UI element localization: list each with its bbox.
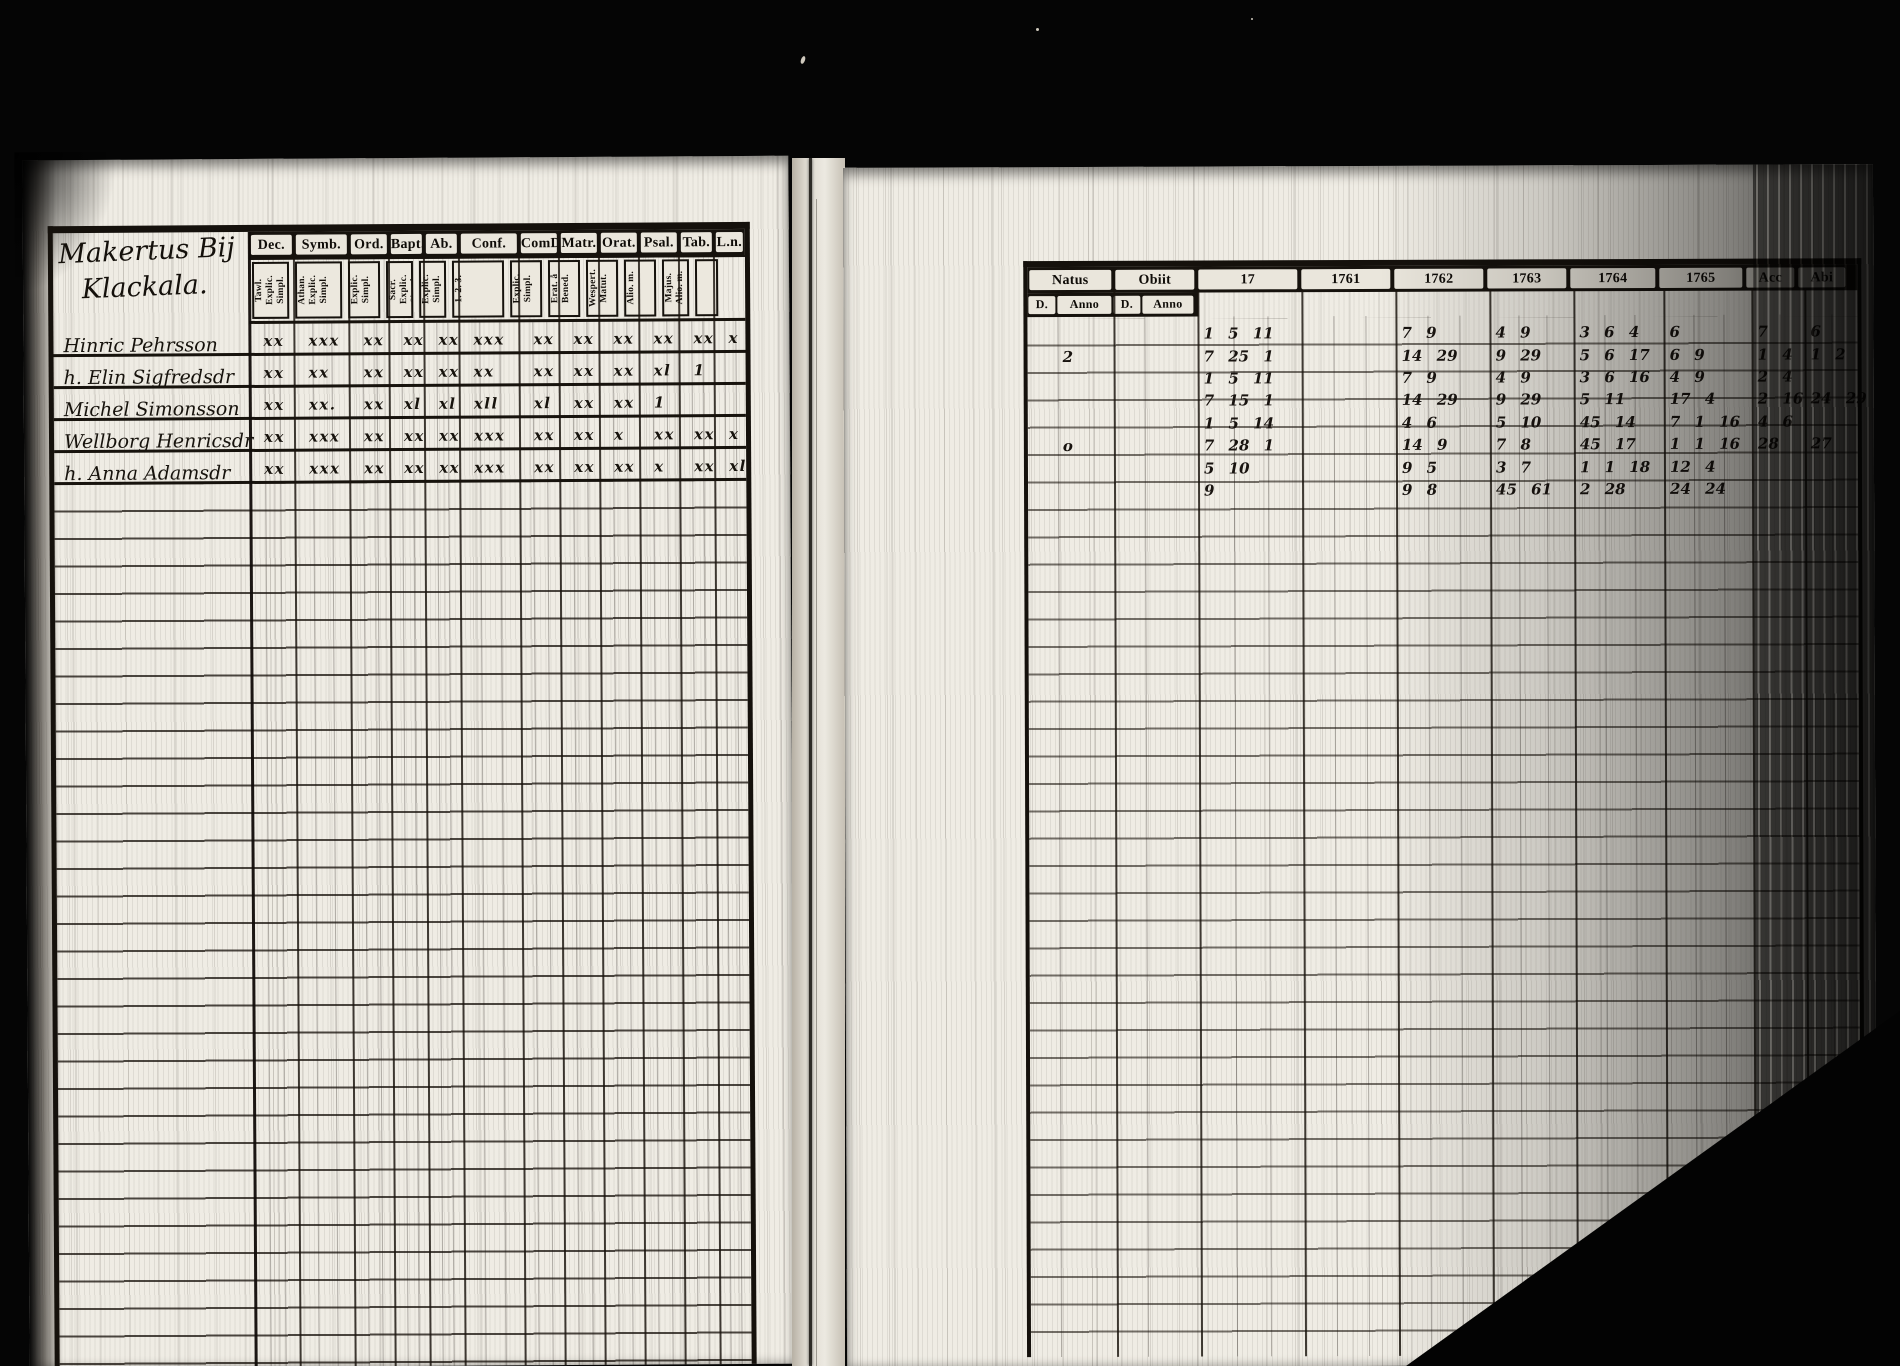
gridline-sub [1518,315,1523,1355]
gridline-sub [331,323,338,1366]
film-speck [1036,28,1039,31]
left-ledger-table: Dec.Symb.Ord.Bapt.Ab.Conf.ComDMatr.Orat.… [48,222,757,1366]
gridline-sub [376,323,383,1366]
gridline-column [598,256,607,1365]
gridline-column [348,257,357,1366]
gridline-sub [532,322,539,1365]
page-edge-streaks [1753,164,1877,1364]
gridline-sub [1723,315,1728,1355]
gridline-sub [279,324,286,1366]
gridline-column [458,257,467,1366]
gridline-sub [735,321,742,1364]
gridline-sub [499,322,506,1365]
gridline-sub [666,321,673,1364]
gridline-sub [724,321,731,1364]
gridline-sub [436,323,443,1366]
gridline-column [1395,290,1401,1356]
gridline-column [293,258,302,1366]
gridline-column [1573,289,1579,1355]
gridline-sub [1459,316,1464,1356]
gridline-column [1197,291,1203,1357]
gridline-sub [612,322,619,1365]
gridline-sub [479,323,486,1366]
gridline-column [713,255,722,1364]
gridline-sub [1365,316,1370,1356]
gridline-sub [1546,315,1551,1355]
gridline-sub [362,323,369,1366]
gridline-sub [1267,316,1272,1356]
gridline-sub [652,321,659,1364]
gridline-sub [1427,316,1432,1356]
gridline-sub [312,324,319,1366]
gridline-column [423,257,432,1366]
gridline-sub [546,322,553,1365]
gridline-column [518,256,527,1365]
gridline-sub [1333,316,1338,1356]
left-page: Dec.Symb.Ord.Bapt.Ab.Conf.ComDMatr.Orat.… [22,156,795,1366]
gridline-sub [1634,315,1639,1355]
heading-line-1: Makertus Bij [58,232,236,270]
gridline-sub [572,322,579,1365]
gridline-sub [691,321,698,1364]
gridline-sub [264,324,271,1366]
film-speck [800,56,806,65]
gridline-sub [1057,317,1062,1357]
right-ledger-table: NatusObiit1717611762176317641765AccAbi D… [1023,258,1865,1357]
gridline-column [1489,290,1495,1356]
gridline-sub [1233,316,1238,1356]
right-table-gridlines [1027,264,1861,1357]
gridline-sub [586,322,593,1365]
gridline-column [638,256,647,1365]
gridline-column [1301,290,1307,1356]
gridline-column [678,255,687,1364]
book-gutter [792,158,845,1366]
gridline-sub [1144,317,1149,1357]
film-speck [1251,18,1253,20]
gridline-column [1663,289,1669,1355]
page-heading: Makertus Bij Klackala. [58,230,237,309]
gridline-name-boundary [248,232,258,1366]
gridline-sub [626,322,633,1365]
gridline-column [388,257,397,1366]
gutter-crease [809,158,812,1366]
left-table-gridlines [53,229,752,1366]
heading-line-2: Klackala. [59,269,208,306]
gridline-sub [447,323,454,1366]
right-page: NatusObiit1717611762176317641765AccAbi D… [843,164,1877,1366]
gridline-sub [401,323,408,1366]
gridline-sub [702,321,709,1364]
microfilm-scan: Dec.Symb.Ord.Bapt.Ab.Conf.ComDMatr.Orat.… [0,0,1900,1366]
gridline-sub [1693,315,1698,1355]
gridline-column [1113,291,1119,1357]
gridline-column [558,256,567,1365]
gridline-sub [412,323,419,1366]
gridline-sub [1604,315,1609,1355]
